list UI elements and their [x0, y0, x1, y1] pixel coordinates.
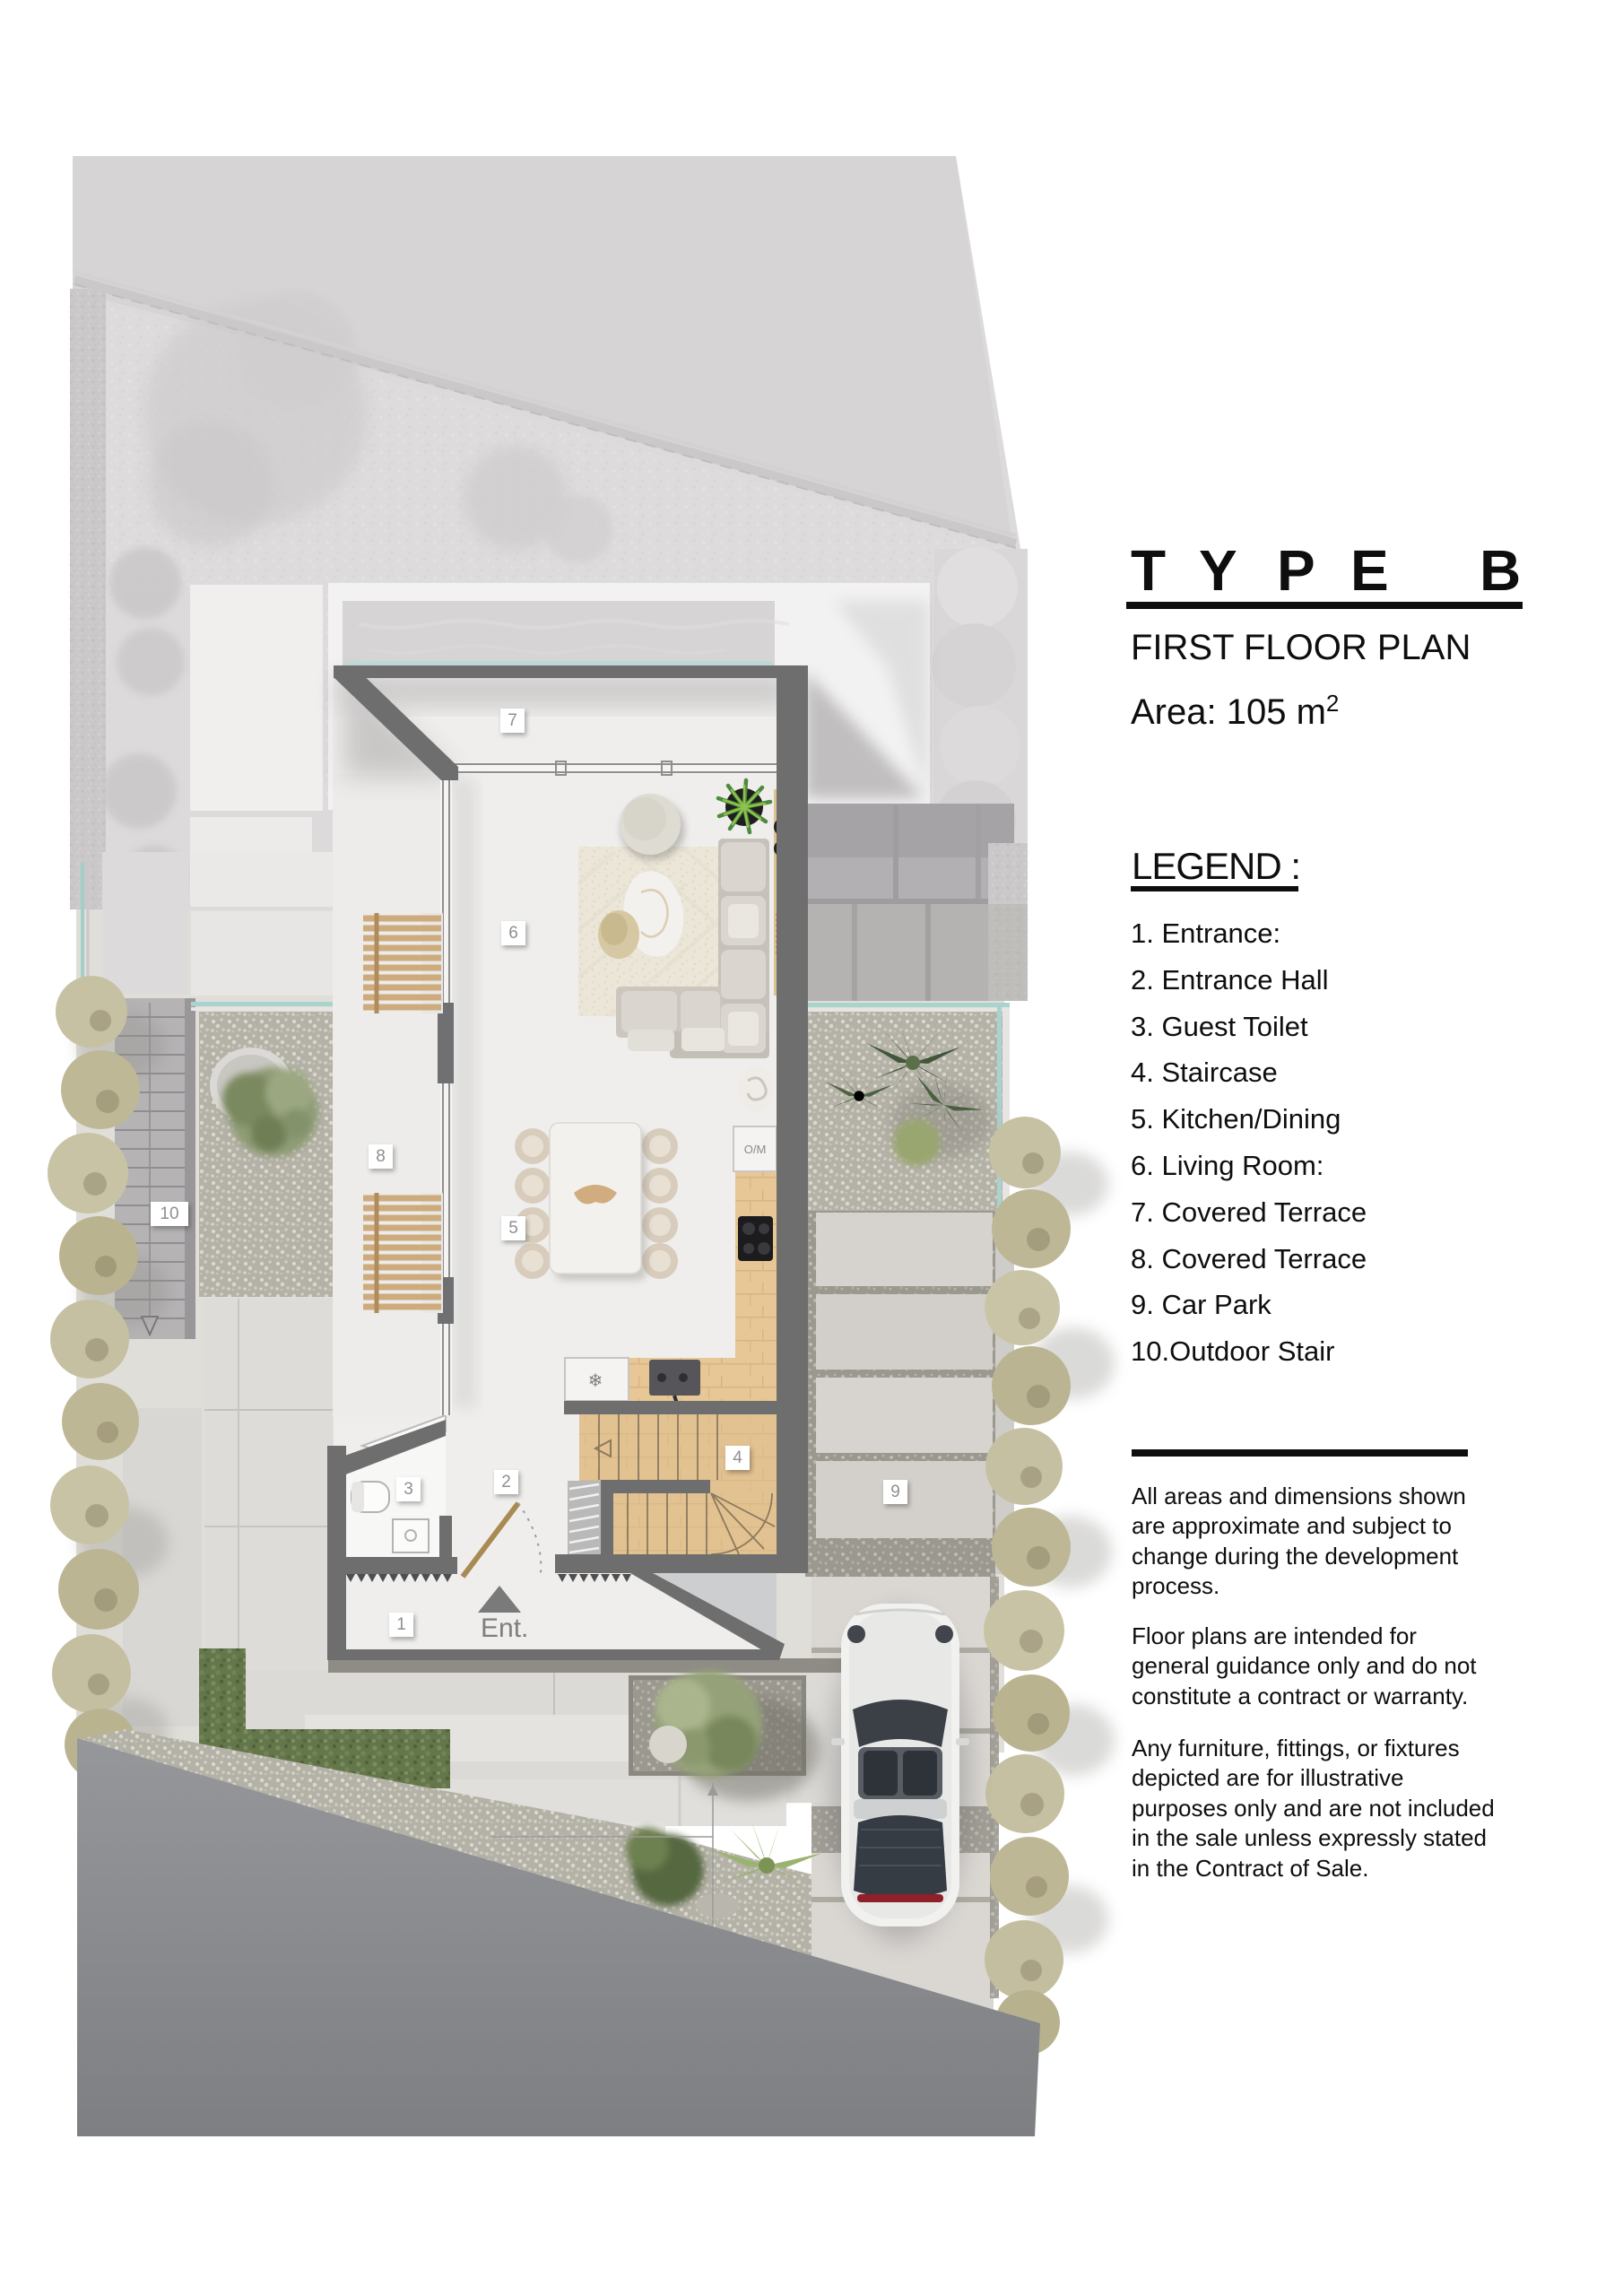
- svg-text:O/M: O/M: [744, 1143, 767, 1156]
- svg-text:❄: ❄: [588, 1371, 603, 1391]
